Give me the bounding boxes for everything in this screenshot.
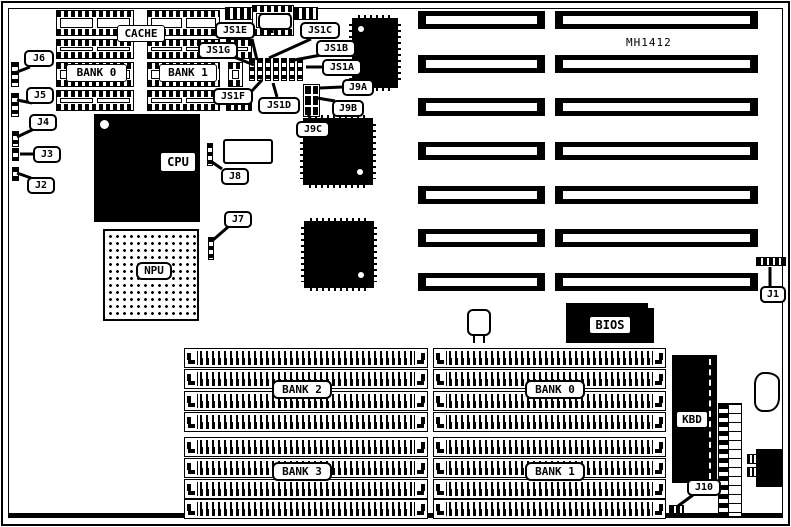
- isa-slot-segment: [555, 142, 758, 160]
- callout-j9b: J9B: [332, 100, 364, 117]
- callout-j8: J8: [221, 168, 249, 185]
- isa-slot-segment: [418, 11, 545, 29]
- j7-jumper: [208, 237, 214, 260]
- callout-js1g: JS1G: [198, 42, 238, 59]
- callout-j9c: J9C: [296, 121, 330, 138]
- cache-chip: [228, 62, 243, 87]
- npu-label: NPU: [136, 262, 172, 280]
- simm-bank3-label: BANK 3: [272, 462, 332, 481]
- simm-socket: [433, 499, 666, 519]
- simm-socket: [184, 437, 428, 457]
- din-connector-pin: [747, 454, 757, 464]
- isa-slot-segment: [555, 11, 758, 29]
- simm-socket: [433, 348, 666, 368]
- callout-tag: [258, 13, 292, 30]
- isa-slot-segment: [418, 98, 545, 116]
- callout-j7: J7: [224, 211, 252, 228]
- simm-bank1-label: BANK 1: [525, 462, 585, 481]
- cache-chip: [294, 7, 318, 20]
- simm-socket: [184, 348, 428, 368]
- keyboard-din-connector: [756, 449, 783, 487]
- kbd-label: KBD: [676, 411, 708, 428]
- kbd-chip-divider: [709, 359, 711, 479]
- callout-j5: J5: [26, 87, 54, 104]
- pin1-dot: [358, 26, 364, 32]
- js1-jumper: [257, 58, 263, 81]
- cpu-label: CPU: [160, 152, 196, 172]
- js1-jumper: [289, 58, 295, 81]
- pin1-dot: [357, 169, 363, 175]
- pin1-dot: [358, 272, 364, 278]
- keyboard-connector-outline: [754, 372, 780, 412]
- isa-slot-segment: [418, 273, 545, 291]
- j3-connector: [12, 148, 19, 161]
- callout-j2: J2: [27, 177, 55, 194]
- js1-jumper: [249, 58, 255, 81]
- cache-chip: [56, 90, 134, 111]
- isa-slot-segment: [418, 55, 545, 73]
- callout-js1b: JS1B: [316, 40, 356, 57]
- j1-connector: [756, 257, 786, 266]
- isa-slot-segment: [555, 229, 758, 247]
- qfp-chip: [352, 18, 398, 88]
- js1-jumper: [297, 58, 303, 81]
- j5-connector: [11, 93, 19, 117]
- j9-jumper-block: [303, 84, 320, 117]
- isa-slot-segment: [555, 186, 758, 204]
- simm-socket: [433, 412, 666, 432]
- callout-js1c: JS1C: [300, 22, 340, 39]
- cache-label: CACHE: [117, 25, 165, 42]
- js1-jumper: [265, 58, 271, 81]
- j8-jumper: [207, 143, 213, 166]
- callout-j1: J1: [760, 286, 786, 303]
- simm-socket: [433, 437, 666, 457]
- callout-js1f: JS1F: [213, 88, 253, 105]
- din-connector-pin: [747, 467, 757, 477]
- oscillator-outline: [223, 139, 273, 164]
- bios-label: BIOS: [589, 316, 631, 334]
- callout-js1d: JS1D: [258, 97, 300, 114]
- callout-j4: J4: [29, 114, 57, 131]
- motherboard-layout-diagram: CACHE BANK 0 BANK 1 CPU NPU: [0, 0, 791, 527]
- isa-slot-segment: [555, 273, 758, 291]
- simm-bank2-label: BANK 2: [272, 380, 332, 399]
- power-connector: [718, 403, 742, 517]
- isa-slot-segment: [418, 186, 545, 204]
- callout-js1a: JS1A: [322, 59, 362, 76]
- isa-slot-segment: [418, 229, 545, 247]
- j4-connector: [12, 131, 19, 147]
- callout-j6: J6: [24, 50, 54, 67]
- j10-connector: [669, 505, 684, 514]
- simm-socket: [184, 479, 428, 499]
- cache-chip: [147, 90, 220, 111]
- cache-chip: [56, 39, 134, 59]
- js1-jumper: [273, 58, 279, 81]
- j2-connector: [12, 167, 19, 181]
- j6-connector: [11, 62, 19, 87]
- isa-slot-segment: [418, 142, 545, 160]
- simm-socket: [433, 479, 666, 499]
- callout-j3: J3: [33, 146, 61, 163]
- callout-j10: J10: [687, 479, 721, 496]
- isa-slot-segment: [555, 55, 758, 73]
- simm-bank0-label: BANK 0: [525, 380, 585, 399]
- simm-socket: [184, 499, 428, 519]
- cache-bank0-label: BANK 0: [66, 64, 127, 82]
- cpu-pin1-dot: [100, 120, 109, 129]
- isa-slot-segment: [555, 98, 758, 116]
- qfp-chip: [304, 221, 374, 288]
- simm-socket: [184, 412, 428, 432]
- callout-j9a: J9A: [342, 79, 374, 96]
- board-model: MH1412: [626, 36, 672, 49]
- js1-jumper: [281, 58, 287, 81]
- bios-notch: [648, 303, 654, 308]
- crystal-oscillator: [467, 309, 491, 336]
- cache-bank1-label: BANK 1: [159, 64, 217, 82]
- callout-js1e: JS1E: [215, 22, 255, 39]
